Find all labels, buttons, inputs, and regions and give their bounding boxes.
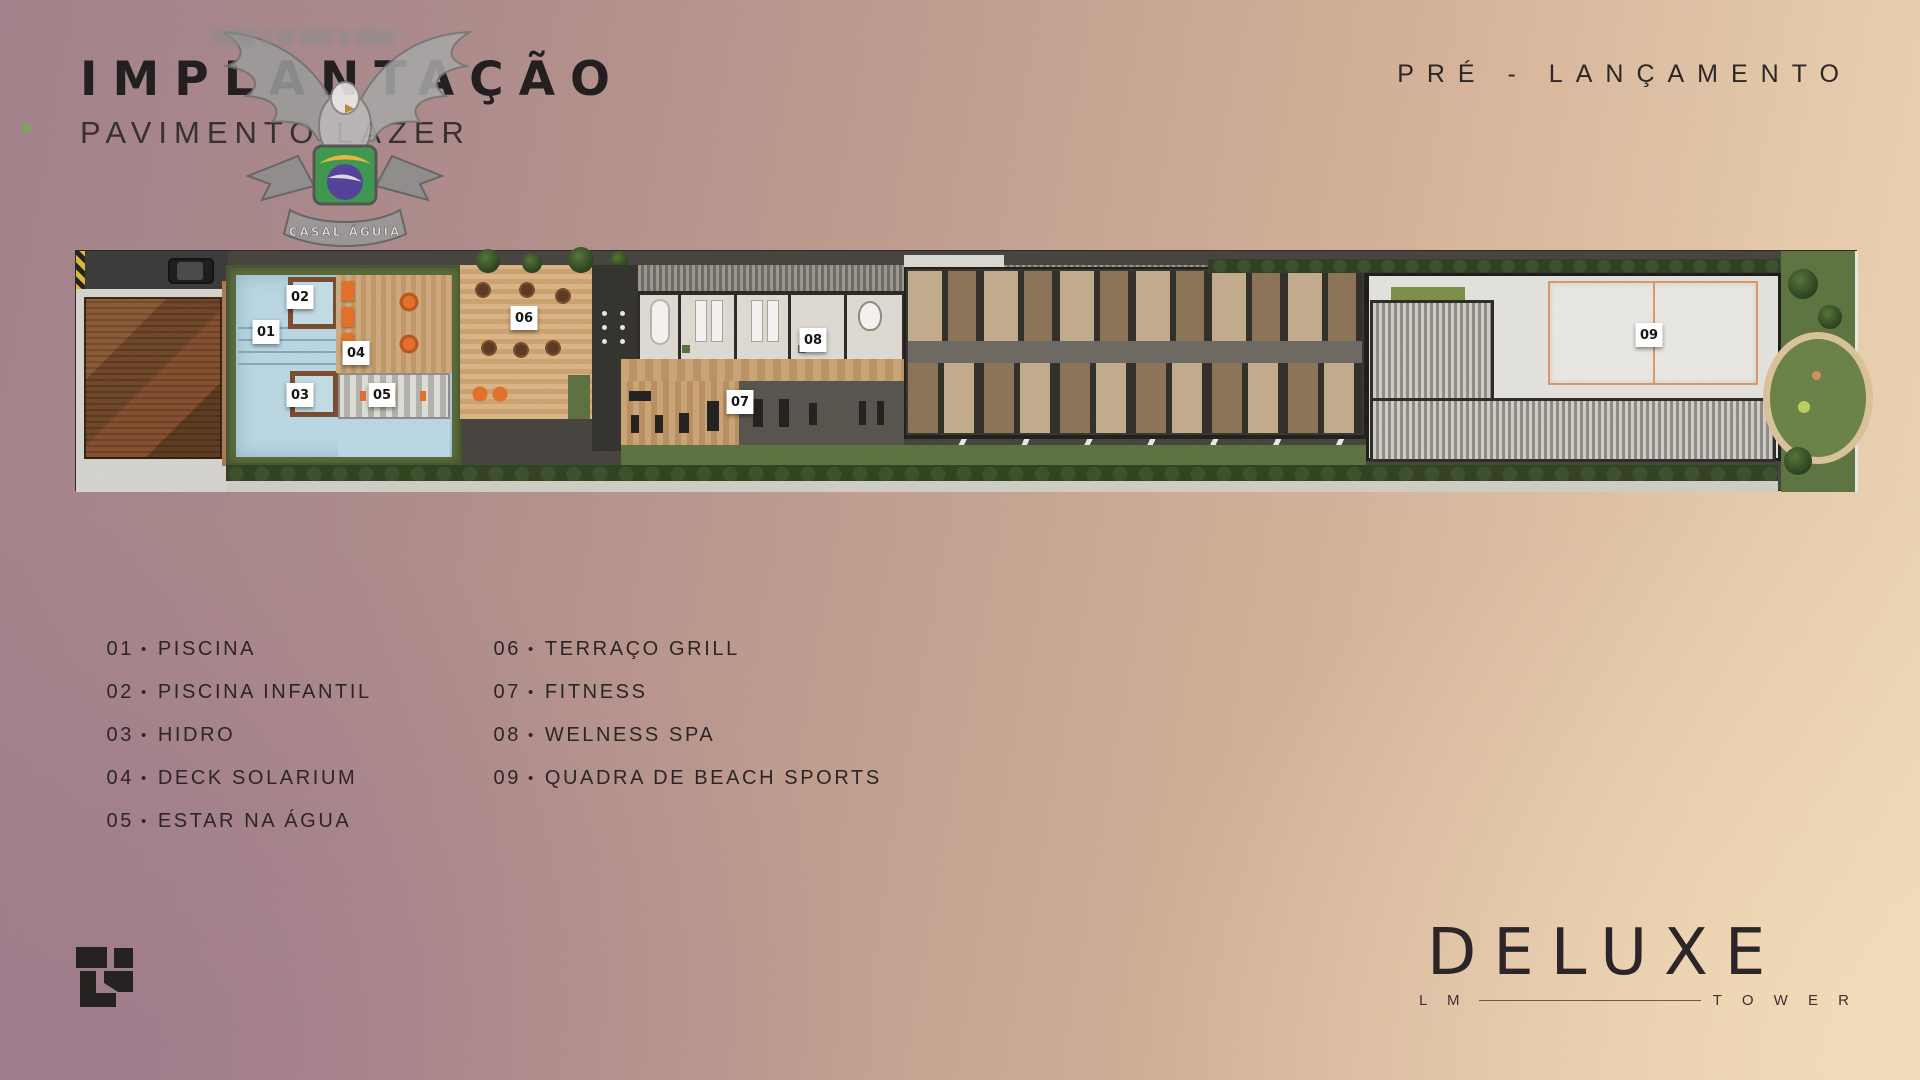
- plan-suites-bottom-row: [908, 363, 1362, 433]
- plan-table: [480, 339, 498, 357]
- legend-item-label: ESTAR NA ÁGUA: [158, 810, 351, 833]
- legend-item-label: FITNESS: [545, 681, 648, 704]
- plan-table: [544, 339, 562, 357]
- legend-bullet: •: [141, 641, 149, 658]
- legend-item-number: 07: [487, 681, 521, 704]
- legend-item: 07•FITNESS: [487, 671, 882, 714]
- lm-logo-mark: [73, 940, 139, 1014]
- plan-pergola-roof-bottom: [1373, 401, 1773, 459]
- legend-item: 08•WELNESS SPA: [487, 714, 882, 757]
- legend-item-label: TERRAÇO GRILL: [545, 638, 740, 661]
- tree: [568, 247, 594, 273]
- legend-bullet: •: [141, 684, 149, 701]
- legend-item-number: 05: [100, 810, 134, 833]
- plan-entrance-roof: [84, 297, 222, 459]
- legend-bullet: •: [141, 813, 149, 830]
- legend-left-column: 01•PISCINA 02•PISCINA INFANTIL 03•HIDRO …: [100, 628, 372, 843]
- legend-bullet: •: [528, 770, 536, 787]
- legend-bullet: •: [141, 727, 149, 744]
- plan-terrace-planter: [1391, 287, 1465, 303]
- plan-table: [554, 287, 572, 305]
- plan-top-hedge: [1208, 259, 1780, 273]
- plan-fitness-gray: [739, 381, 904, 445]
- plan-wood-corridor: [621, 359, 904, 383]
- plan-pool-water-lower: [338, 419, 450, 457]
- plan-marker-06: 06: [511, 306, 538, 330]
- legend-item: 09•QUADRA DE BEACH SPORTS: [487, 757, 882, 800]
- legend-item: 05•ESTAR NA ÁGUA: [100, 800, 372, 843]
- legend-item: 04•DECK SOLARIUM: [100, 757, 372, 800]
- floor-plan: 01 02 03 04 05 06 07 08 09: [75, 250, 1857, 491]
- brand-lm: L M: [1419, 992, 1467, 1009]
- plan-lounger: [342, 281, 354, 301]
- legend-item-label: HIDRO: [158, 724, 235, 747]
- plan-welness-spa: [638, 293, 904, 361]
- legend-item-label: PISCINA INFANTIL: [158, 681, 372, 704]
- legend-item-number: 04: [100, 767, 134, 790]
- watermark-blurred-text: [213, 26, 395, 48]
- plan-chair-set: [398, 291, 420, 313]
- plan-grill-green: [568, 375, 590, 419]
- ribbon-text: CASAL ÁGUIA: [289, 224, 401, 239]
- legend-bullet: •: [141, 770, 149, 787]
- tree: [1788, 269, 1818, 299]
- plan-marker-02: 02: [287, 285, 314, 309]
- legend-item-number: 08: [487, 724, 521, 747]
- plan-marker-09: 09: [1636, 323, 1663, 347]
- plan-marker-05: 05: [369, 383, 396, 407]
- plan-fitness-wood: [621, 381, 739, 445]
- plan-suites-block: [904, 267, 1366, 437]
- green-speck: [22, 124, 31, 132]
- brand-subline: L M T O W E R: [1419, 992, 1857, 1009]
- legend-item: 03•HIDRO: [100, 714, 372, 757]
- legend-bullet: •: [528, 684, 536, 701]
- legend-item-label: PISCINA: [158, 638, 256, 661]
- plan-table: [474, 281, 492, 299]
- brazil-flag-shield: [314, 146, 376, 204]
- legend-item-number: 01: [100, 638, 134, 661]
- plan-table: [518, 281, 536, 299]
- legend-item-number: 02: [100, 681, 134, 704]
- plan-bottom-walk: [226, 481, 1778, 492]
- plan-lounger: [342, 307, 354, 327]
- legend-bullet: •: [528, 727, 536, 744]
- legend-item-number: 06: [487, 638, 521, 661]
- plan-marker-07: 07: [727, 390, 754, 414]
- brand-rule: [1479, 1000, 1700, 1001]
- plan-marker-03: 03: [287, 383, 314, 407]
- legend-item: 06•TERRAÇO GRILL: [487, 628, 882, 671]
- brand-block: DELUXE L M T O W E R: [1419, 916, 1857, 1009]
- tree: [1784, 447, 1812, 475]
- tree: [522, 253, 542, 273]
- legend-right-column: 06•TERRAÇO GRILL 07•FITNESS 08•WELNESS S…: [487, 628, 882, 800]
- plan-orange-chairs: [470, 379, 510, 409]
- plan-garden-lawn-circle: [1770, 339, 1866, 457]
- plan-suites-corridor: [908, 341, 1362, 363]
- tree: [1818, 305, 1842, 329]
- plan-chair-set: [398, 333, 420, 355]
- page: { "header": { "title": "IMPLANTAÇÃO", "s…: [0, 0, 1920, 1080]
- legend-bullet: •: [528, 641, 536, 658]
- legend-item-number: 03: [100, 724, 134, 747]
- plan-marker-01: 01: [253, 320, 280, 344]
- legend-item: 02•PISCINA INFANTIL: [100, 671, 372, 714]
- legend-item-label: WELNESS SPA: [545, 724, 716, 747]
- legend-item-number: 09: [487, 767, 521, 790]
- plan-grass-strip: [621, 445, 1366, 467]
- legend-item-label: QUADRA DE BEACH SPORTS: [545, 767, 882, 790]
- plan-marker-04: 04: [343, 341, 370, 365]
- plan-marker-08: 08: [800, 328, 827, 352]
- brand-name: DELUXE: [1419, 916, 1857, 990]
- brand-tower: T O W E R: [1713, 992, 1857, 1009]
- legend-item-label: DECK SOLARIUM: [158, 767, 357, 790]
- plan-table: [512, 341, 530, 359]
- plan-suites-top-row: [908, 271, 1362, 341]
- legend-item: 01•PISCINA: [100, 628, 372, 671]
- pre-launch-label: PRÉ - LANÇAMENTO: [1397, 60, 1852, 89]
- plan-pergola-roof-left: [1373, 303, 1491, 401]
